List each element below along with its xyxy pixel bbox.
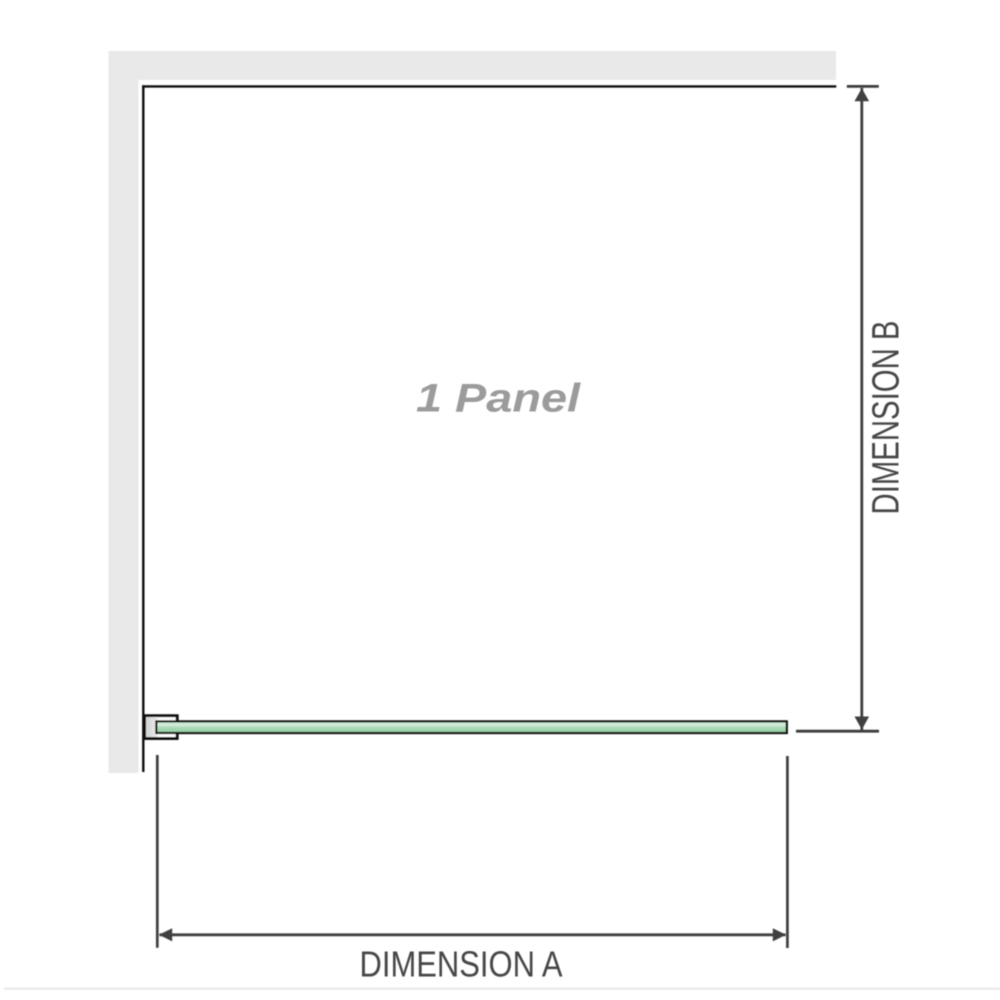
svg-text:DIMENSION B: DIMENSION B — [866, 321, 908, 515]
svg-text:DIMENSION A: DIMENSION A — [360, 944, 563, 985]
svg-text:1 Panel: 1 Panel — [416, 377, 581, 421]
